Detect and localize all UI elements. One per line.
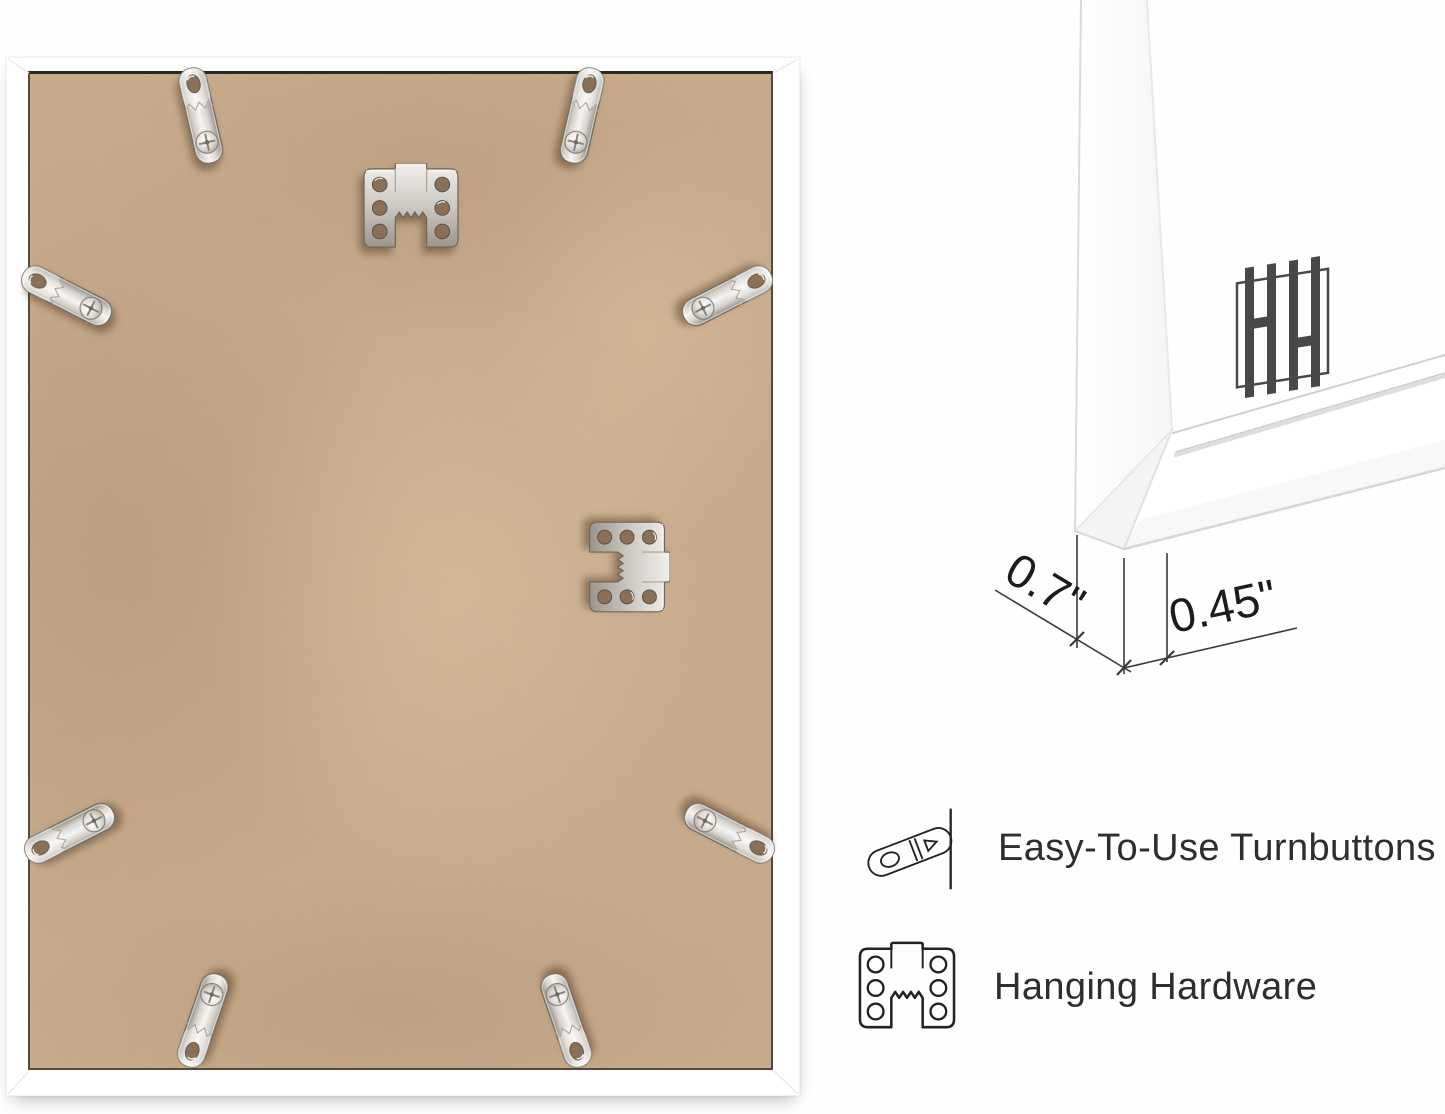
frame-corner-diagram: 0.7" 0.45" <box>975 0 1445 700</box>
turnbutton-icon <box>858 804 960 892</box>
hanging-hardware-icon <box>858 940 956 1034</box>
sawtooth-hanger-top <box>359 163 463 251</box>
face-dimension-label: 0.45" <box>1164 569 1281 643</box>
product-image: 0.7" 0.45" Easy-To-Use Turnbuttons Hang <box>0 0 1445 1114</box>
sawtooth-hanger-side <box>586 519 670 615</box>
feature-label: Hanging Hardware <box>994 966 1317 1009</box>
frame-back-photo <box>6 57 800 1096</box>
hh-brand-logo <box>1237 255 1328 399</box>
feature-turnbuttons: Easy-To-Use Turnbuttons <box>858 803 1436 893</box>
feature-hanging-hardware: Hanging Hardware <box>858 938 1317 1036</box>
depth-dimension-label: 0.7" <box>997 542 1095 630</box>
feature-label: Easy-To-Use Turnbuttons <box>998 827 1436 870</box>
